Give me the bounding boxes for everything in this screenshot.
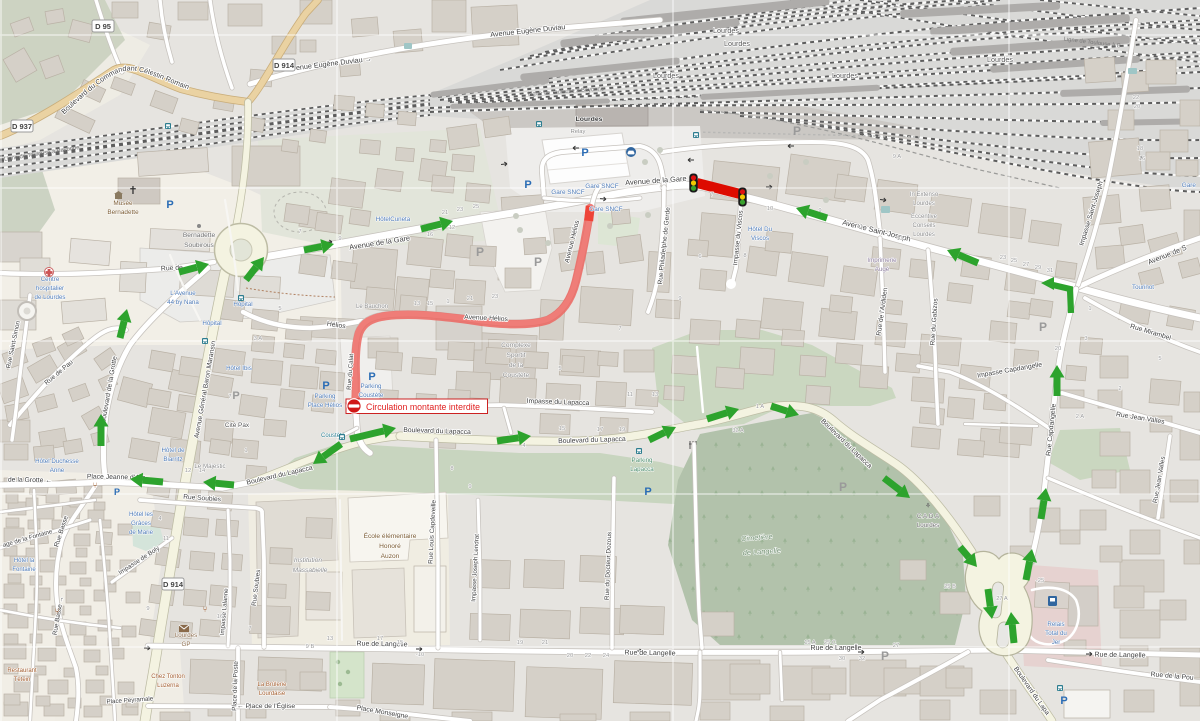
- svg-text:D 914: D 914: [274, 61, 295, 70]
- svg-text:9 A: 9 A: [893, 154, 902, 160]
- svg-text:22: 22: [585, 653, 591, 659]
- svg-text:HôtelCuneta: HôtelCuneta: [376, 216, 411, 223]
- svg-text:Hôtel Du: Hôtel Du: [748, 226, 773, 233]
- svg-text:Lourdes: Lourdes: [653, 71, 679, 80]
- svg-text:Cité Pax: Cité Pax: [225, 422, 250, 429]
- svg-text:13: 13: [652, 392, 658, 398]
- svg-text:3: 3: [1084, 336, 1087, 342]
- svg-text:Total du: Total du: [1045, 630, 1067, 637]
- svg-text:Bernadette: Bernadette: [107, 209, 139, 216]
- svg-text:P: P: [1060, 695, 1067, 707]
- svg-text:In Extenso: In Extenso: [910, 192, 939, 198]
- svg-text:16: 16: [217, 614, 223, 620]
- svg-text:Lourdaise: Lourdaise: [259, 691, 286, 697]
- svg-text:Gare SNCF: Gare SNCF: [551, 189, 584, 196]
- svg-text:Lourdes: Lourdes: [913, 232, 935, 238]
- svg-text:de la Grotte ←: de la Grotte ←: [8, 477, 52, 485]
- svg-text:7: 7: [618, 326, 621, 332]
- svg-text:Rue de Langelle: Rue de Langelle: [624, 650, 675, 658]
- svg-text:25 B: 25 B: [944, 584, 956, 590]
- svg-text:Hôtel Ibis: Hôtel Ibis: [226, 365, 252, 372]
- svg-text:Massabielle: Massabielle: [293, 567, 328, 574]
- svg-text:2: 2: [1118, 386, 1121, 392]
- svg-text:Sportif: Sportif: [506, 352, 525, 359]
- svg-text:Viscos: Viscos: [751, 235, 769, 242]
- svg-text:Lourdes: Lourdes: [917, 522, 939, 529]
- svg-text:P: P: [793, 124, 801, 138]
- svg-text:21: 21: [442, 210, 448, 216]
- svg-text:P: P: [114, 487, 120, 497]
- svg-text:P: P: [232, 390, 239, 402]
- svg-text:25: 25: [473, 204, 479, 210]
- svg-text:22: 22: [1133, 95, 1139, 101]
- svg-text:Hôpital: Hôpital: [202, 320, 221, 327]
- svg-text:Lourdes: Lourdes: [175, 632, 197, 639]
- svg-text:1: 1: [446, 299, 449, 305]
- svg-text:Imprimerie: Imprimerie: [867, 257, 897, 264]
- svg-text:Centre: Centre: [41, 276, 60, 283]
- svg-text:1 A: 1 A: [756, 404, 765, 410]
- svg-text:-10: -10: [416, 652, 424, 658]
- svg-text:✝: ✝: [128, 185, 137, 197]
- svg-text:Lourdes: Lourdes: [724, 39, 750, 48]
- svg-text:⑂: ⑂: [203, 605, 208, 614]
- svg-text:17: 17: [597, 427, 603, 433]
- svg-text:Luzerna: Luzerna: [157, 683, 179, 689]
- svg-text:Lourdes: Lourdes: [832, 71, 858, 80]
- svg-text:13: 13: [897, 236, 903, 242]
- svg-text:11: 11: [857, 224, 863, 230]
- svg-text:20: 20: [1055, 346, 1061, 352]
- svg-text:Fontaine: Fontaine: [12, 567, 36, 573]
- svg-text:15: 15: [427, 301, 433, 307]
- svg-text:Tourinot: Tourinot: [1132, 284, 1154, 291]
- svg-text:11: 11: [627, 392, 633, 398]
- svg-text:16: 16: [427, 232, 433, 238]
- svg-text:Complexe: Complexe: [501, 342, 531, 349]
- svg-text:9: 9: [338, 236, 341, 242]
- svg-text:⑂: ⑂: [93, 481, 98, 490]
- svg-text:30: 30: [839, 656, 845, 662]
- svg-text:Hôtel Duchesse: Hôtel Duchesse: [35, 458, 79, 465]
- svg-text:P: P: [322, 380, 329, 392]
- svg-text:5: 5: [558, 366, 561, 372]
- svg-text:Jer: Jer: [1052, 639, 1061, 646]
- svg-text:Bernadette: Bernadette: [183, 232, 216, 239]
- svg-text:Hôtel la: Hôtel la: [14, 558, 35, 564]
- svg-text:Lapacca: Lapacca: [630, 466, 654, 473]
- svg-text:24: 24: [603, 653, 610, 659]
- svg-text:P: P: [581, 147, 588, 159]
- svg-text:Grâces: Grâces: [131, 520, 151, 527]
- svg-text:32: 32: [859, 656, 865, 662]
- svg-text:Le Bauchon: Le Bauchon: [356, 304, 388, 310]
- svg-text:Restaurant: Restaurant: [7, 668, 37, 674]
- svg-text:P: P: [368, 371, 375, 383]
- svg-text:10: 10: [767, 206, 773, 212]
- svg-text:-25: -25: [1036, 578, 1044, 584]
- svg-text:P: P: [534, 255, 542, 269]
- svg-text:15 A: 15 A: [804, 640, 816, 646]
- svg-text:Coustète: Coustète: [503, 372, 530, 379]
- svg-text:8: 8: [450, 466, 453, 472]
- svg-text:21: 21: [542, 640, 548, 646]
- svg-text:9 B: 9 B: [306, 644, 315, 650]
- svg-text:7: 7: [710, 192, 713, 198]
- svg-text:L'Avenue: L'Avenue: [170, 290, 196, 297]
- svg-text:Parking: Parking: [632, 457, 654, 464]
- svg-text:19: 19: [517, 640, 523, 646]
- svg-text:2 A: 2 A: [1076, 414, 1085, 420]
- svg-text:1: 1: [1088, 306, 1091, 312]
- svg-text:3 A: 3 A: [254, 336, 263, 342]
- svg-text:9: 9: [678, 296, 681, 302]
- svg-text:Parking: Parking: [361, 383, 383, 390]
- svg-text:de Lourdes: de Lourdes: [35, 294, 66, 301]
- svg-text:P: P: [839, 480, 847, 494]
- svg-text:P: P: [644, 486, 651, 498]
- svg-text:19: 19: [619, 427, 625, 433]
- svg-text:hospitalier: hospitalier: [36, 285, 64, 292]
- svg-text:D 95: D 95: [95, 22, 111, 31]
- svg-text:27 A: 27 A: [996, 596, 1008, 602]
- svg-text:25: 25: [1011, 258, 1017, 264]
- svg-text:Parking: Parking: [315, 393, 337, 400]
- svg-text:P: P: [476, 245, 484, 259]
- svg-text:Gare SNCF: Gare SNCF: [585, 183, 618, 190]
- svg-text:P: P: [881, 649, 889, 663]
- svg-text:C.A.D.A: C.A.D.A: [917, 513, 940, 520]
- svg-text:D 937: D 937: [12, 122, 32, 131]
- svg-text:5: 5: [1158, 356, 1161, 362]
- svg-text:Institution: Institution: [294, 557, 323, 564]
- svg-text:13: 13: [327, 636, 333, 642]
- svg-text:15: 15: [559, 426, 565, 432]
- svg-text:21: 21: [467, 296, 473, 302]
- svg-text:Rue de Langelle: Rue de Langelle: [1094, 652, 1145, 660]
- svg-text:7: 7: [248, 626, 251, 632]
- svg-text:Soubirous: Soubirous: [184, 242, 214, 249]
- svg-text:Lourdes: Lourdes: [913, 201, 935, 207]
- svg-text:Coustète: Coustète: [359, 392, 384, 399]
- svg-text:Relais: Relais: [1047, 621, 1064, 628]
- svg-text:Hôtel les: Hôtel les: [129, 511, 153, 518]
- svg-text:11: 11: [163, 536, 169, 542]
- svg-text:9: 9: [468, 484, 471, 490]
- svg-text:Conseils: Conseils: [912, 223, 935, 229]
- svg-text:6: 6: [698, 254, 701, 260]
- svg-text:La Brûlerie: La Brûlerie: [257, 682, 287, 688]
- svg-text:17: 17: [377, 636, 383, 642]
- svg-text:P: P: [524, 179, 531, 191]
- svg-text:32 A: 32 A: [732, 428, 744, 434]
- svg-text:14: 14: [199, 468, 206, 474]
- svg-text:⚘: ⚘: [925, 502, 931, 510]
- svg-text:Rue de Langelle: Rue de Langelle: [811, 645, 862, 652]
- svg-text:12: 12: [449, 225, 455, 231]
- svg-text:13: 13: [414, 301, 420, 307]
- svg-text:Chez Tonton: Chez Tonton: [151, 674, 185, 680]
- svg-text:Hôpital: Hôpital: [233, 301, 252, 308]
- svg-text:44 by Nana: 44 by Nana: [167, 299, 199, 306]
- svg-text:23: 23: [492, 294, 498, 300]
- svg-text:Augé: Augé: [875, 266, 890, 273]
- svg-text:31: 31: [1047, 268, 1053, 274]
- svg-text:D 914: D 914: [163, 580, 184, 589]
- svg-text:de Marie: de Marie: [129, 529, 154, 536]
- svg-text:← Place de l'Église: ← Place de l'Église: [237, 701, 296, 710]
- svg-text:7: 7: [228, 394, 231, 400]
- svg-text:20: 20: [567, 653, 573, 659]
- svg-text:P: P: [1039, 320, 1047, 334]
- svg-text:de la: de la: [509, 362, 524, 369]
- svg-text:Lourdes: Lourdes: [987, 55, 1013, 64]
- svg-text:Musée: Musée: [113, 200, 133, 207]
- svg-text:16: 16: [1139, 156, 1145, 162]
- svg-text:9: 9: [146, 606, 149, 612]
- svg-text:Eccentive: Eccentive: [911, 214, 938, 220]
- svg-text:1: 1: [244, 448, 247, 454]
- svg-text:27: 27: [893, 643, 899, 649]
- svg-text:12: 12: [185, 468, 191, 474]
- svg-text:15: 15: [397, 640, 403, 646]
- svg-text:Lourdes: Lourdes: [576, 116, 603, 123]
- svg-text:5: 5: [278, 306, 281, 312]
- svg-text:Tétein: Tétein: [14, 677, 31, 683]
- svg-text:Relay: Relay: [571, 129, 586, 135]
- svg-text:Gare SNCF: Gare SNCF: [589, 206, 622, 213]
- svg-text:Auzon: Auzon: [381, 553, 400, 560]
- svg-text:Circulation montante interdite: Circulation montante interdite: [366, 402, 480, 412]
- svg-text:École élémentaire: École élémentaire: [364, 531, 417, 540]
- svg-text:GP: GP: [182, 641, 191, 648]
- svg-text:Hôtel de: Hôtel de: [161, 447, 185, 454]
- svg-text:23: 23: [1000, 255, 1006, 261]
- svg-text:8: 8: [743, 253, 746, 259]
- svg-text:Anne: Anne: [50, 467, 65, 474]
- svg-text:20: 20: [1134, 104, 1140, 110]
- svg-text:18: 18: [1137, 146, 1143, 152]
- svg-text:29: 29: [1035, 265, 1041, 271]
- svg-text:Place Hélios: Place Hélios: [308, 402, 342, 409]
- svg-text:25 C: 25 C: [824, 640, 836, 646]
- svg-text:Gare: Gare: [1182, 182, 1197, 189]
- svg-text:P: P: [166, 199, 173, 211]
- svg-text:7: 7: [298, 229, 301, 235]
- svg-text:Honoré: Honoré: [379, 543, 401, 550]
- svg-text:23: 23: [457, 207, 463, 213]
- svg-text:⑂: ⑂: [55, 607, 60, 616]
- svg-text:Biarritz: Biarritz: [163, 456, 182, 463]
- svg-text:Lourdes: Lourdes: [713, 26, 739, 35]
- svg-text:27: 27: [1023, 262, 1029, 268]
